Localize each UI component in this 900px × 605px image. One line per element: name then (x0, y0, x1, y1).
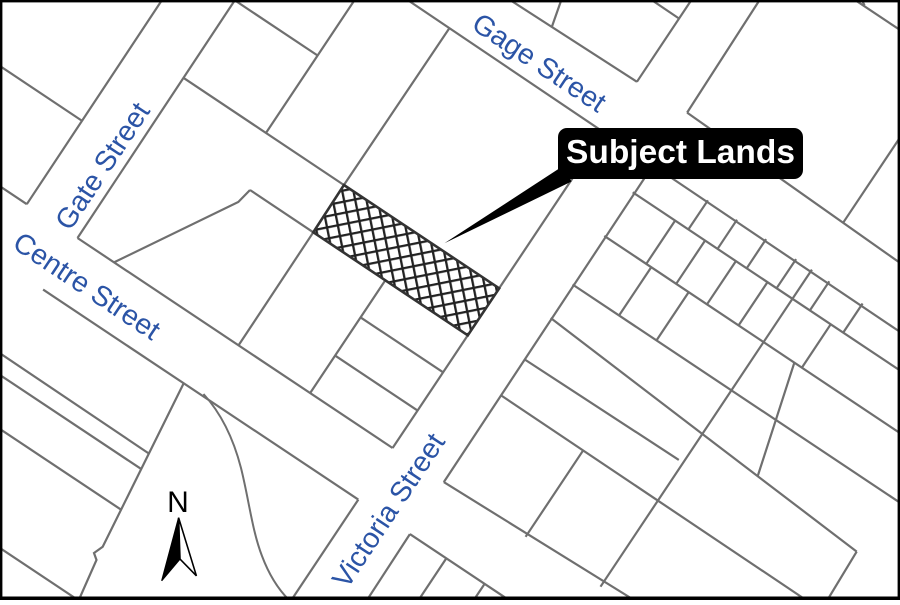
svg-text:N: N (167, 486, 189, 519)
svg-text:Subject Lands: Subject Lands (566, 134, 795, 171)
